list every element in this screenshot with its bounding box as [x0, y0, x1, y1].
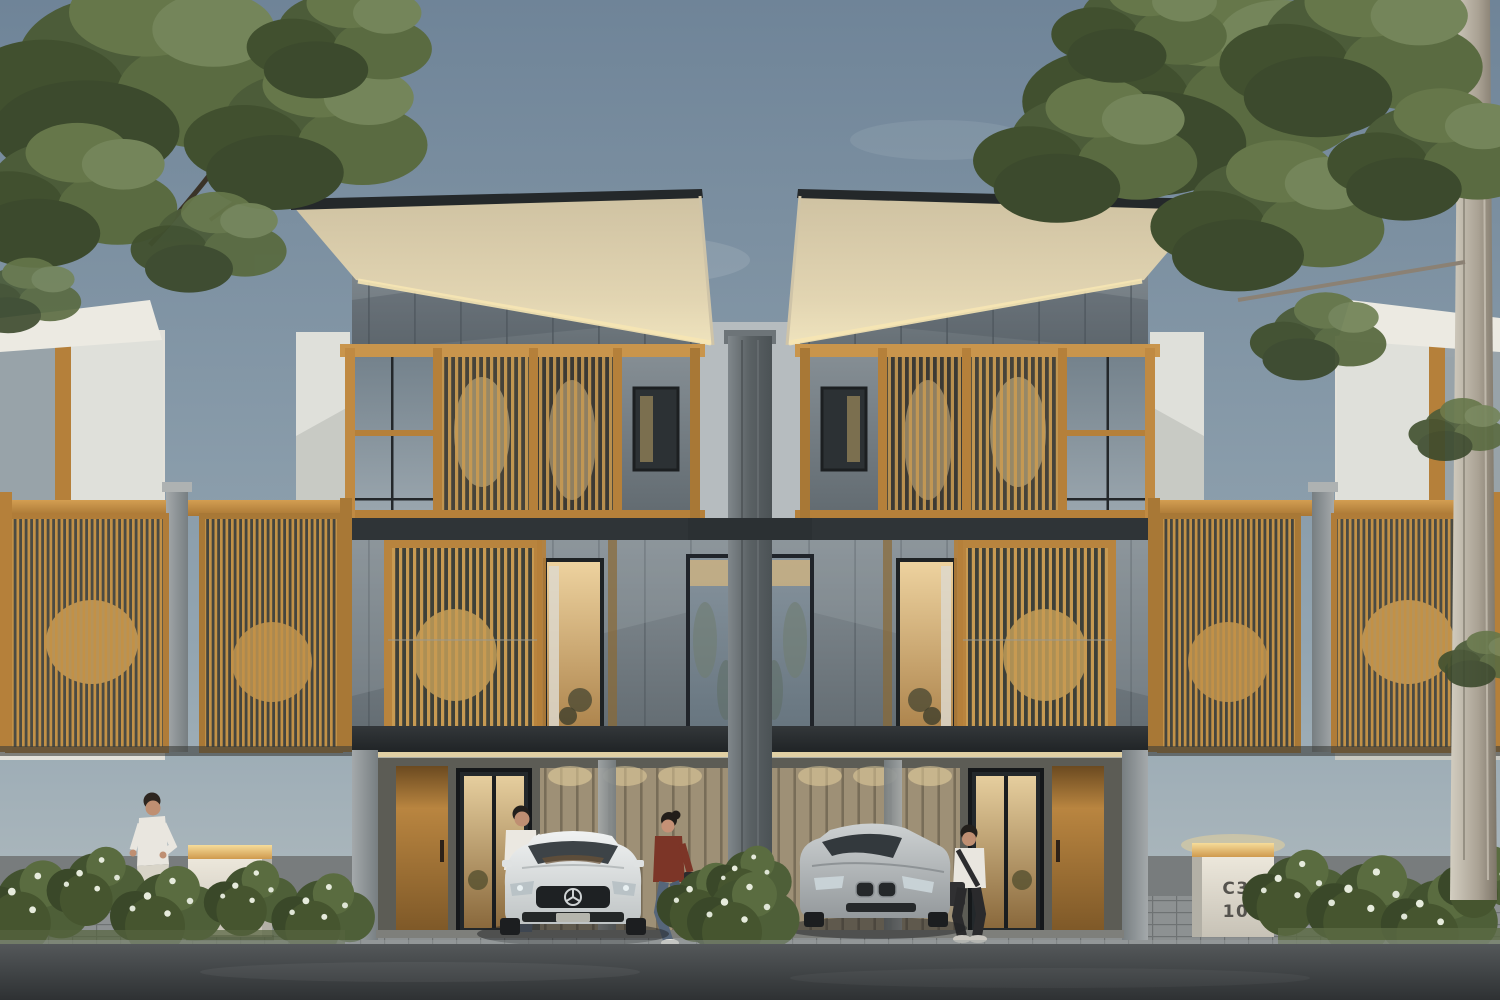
party-wall-column [728, 336, 772, 936]
unit-right [755, 189, 1210, 940]
road [0, 940, 1500, 1000]
scene-canvas: C3 11 C3 10 [0, 0, 1500, 1000]
slab-edge-center [688, 518, 812, 540]
architectural-rendering: C3 11 C3 10 [0, 0, 1500, 1000]
unit-left [290, 189, 745, 940]
